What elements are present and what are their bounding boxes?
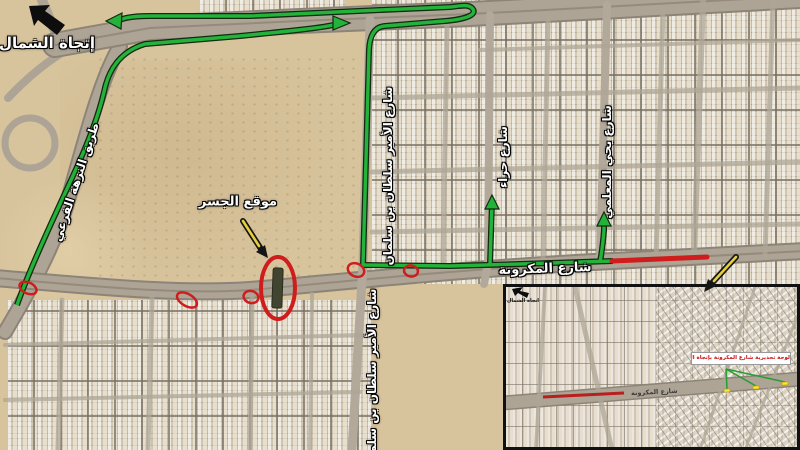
route-arrowhead-west-exit — [106, 13, 122, 29]
street-label-yahya: شارع يحي المعلمي — [600, 105, 614, 219]
nuzha-road-edge — [5, 46, 120, 332]
north-arrow-icon — [29, 5, 65, 35]
map-canvas: اتجاة الشمال شارع المكرونة لوحة تحذيرية … — [0, 0, 800, 450]
street-label-prince-sultan-south: شارع الأمير سلطان بن سلمان — [365, 289, 379, 450]
inset-street — [536, 287, 545, 447]
inset-warning-sign-label: لوحة تحذيرية شارع المكرونة بإتجاة الشمال… — [691, 352, 791, 365]
inset-roads-layer — [506, 287, 797, 447]
interchange-loop — [5, 118, 55, 168]
inset-map: اتجاة الشمال شارع المكرونة لوحة تحذيرية … — [503, 284, 800, 450]
inset-street — [700, 287, 755, 447]
closure-ellipse — [346, 261, 367, 280]
desert-rubble-texture — [95, 55, 360, 285]
inset-street — [575, 287, 612, 447]
street-label-hira: شارع حراء — [496, 126, 510, 188]
north-direction-label: إتجاة الشمال — [0, 34, 95, 52]
nuzha-road — [5, 46, 120, 332]
inset-north-arrow-icon — [512, 287, 529, 298]
urban-blocks-right — [372, 0, 800, 284]
urban-blocks-top — [200, 0, 345, 28]
street-label-prince-sultan-north: شارع الأمير سلطان بن سلمان — [381, 87, 395, 266]
street-label-nuzha: طريق النزهة الفرعي — [50, 121, 102, 243]
inset-north-label: اتجاة الشمال — [507, 298, 539, 304]
bridge-site-label: موقع الجسر — [199, 195, 277, 210]
interchange-ramp — [8, 48, 70, 98]
detour-route-nuzha — [17, 25, 333, 305]
bridge-pointer-arrow-icon — [243, 221, 268, 258]
desert-texture — [60, 60, 360, 290]
closure-ellipse — [18, 279, 39, 297]
urban-blocks-bottom-left — [8, 300, 372, 450]
